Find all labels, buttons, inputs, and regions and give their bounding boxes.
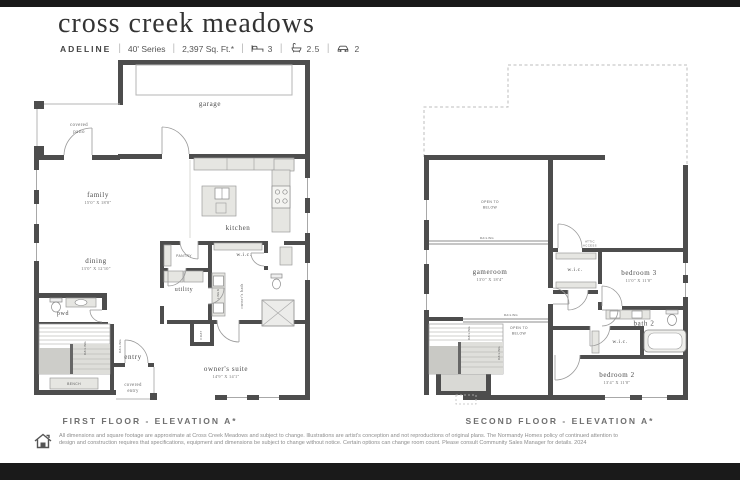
room-label-covered-patio: patio [73, 130, 85, 135]
room-label-bath2: bath 2 [634, 320, 655, 328]
room-dim-owners-suite: 14'9" X 14'1" [212, 374, 239, 379]
cars-count: 2 [354, 44, 359, 54]
second-floor-caption: SECOND FLOOR - ELEVATION A* [440, 416, 680, 426]
first-floor-caption: FIRST FLOOR - ELEVATION A* [30, 416, 270, 426]
second-floor-plan: OPEN TO BELOW RAILING gameroom 13'0" X 1… [420, 58, 710, 408]
beds-meta: 3 [251, 42, 273, 55]
room-label-coat: COAT [199, 330, 203, 339]
room-dim-bedroom3: 11'0" X 11'0" [626, 278, 653, 283]
page-title: cross creek meadows [58, 8, 315, 40]
railing-label: RAILING [118, 339, 122, 353]
bath-icon [290, 42, 303, 55]
separator: | [118, 43, 121, 54]
room-label-entry: entry [124, 353, 141, 361]
room-label-covered-entry: covered [124, 383, 142, 388]
room-dim-dining: 13'0" X 12'10" [81, 266, 111, 271]
room-label-wic: w.i.c. [567, 267, 582, 273]
room-label-covered-patio: covered [70, 123, 88, 128]
separator: | [327, 43, 330, 54]
open-to-below-label: BELOW [483, 206, 498, 210]
room-label-bedroom3: bedroom 3 [621, 269, 657, 277]
room-dim-family: 15'0" X 18'0" [84, 200, 111, 205]
open-to-below-label: BELOW [512, 332, 527, 336]
bottom-border-bar [0, 463, 740, 480]
room-label-garage: garage [199, 100, 221, 108]
room-label-wic: w.i.c. [612, 339, 627, 345]
room-label-bedroom2: bedroom 2 [599, 371, 635, 379]
baths-meta: 2.5 [290, 42, 320, 55]
room-dim-gameroom: 13'0" X 18'4" [476, 277, 503, 282]
separator: | [241, 43, 244, 54]
room-label-owners-bath: owner's bath [239, 283, 244, 309]
first-floor-fixtures [39, 158, 294, 389]
railing-label: RAILING [504, 313, 518, 317]
bench-label: BENCH [67, 382, 81, 386]
room-label-linen: LINEN [216, 289, 220, 299]
stairs [429, 324, 503, 374]
disclaimer-text: All dimensions and square footage are ap… [59, 433, 709, 447]
first-floor-plan: garage covered patio family 15'0" X 18'0… [32, 58, 312, 408]
room-label-utility: utility [175, 287, 194, 293]
railing-label: RAILING [480, 236, 494, 240]
beds-count: 3 [268, 44, 273, 54]
sqft-label: 2,397 Sq. Ft.* [182, 44, 234, 54]
attic-access-label: ACCESS [583, 244, 597, 248]
disclaimer-line-1: All dimensions and square footage are ap… [59, 433, 709, 440]
plan-meta-row: ADELINE | 40' Series | 2,397 Sq. Ft.* | … [60, 42, 360, 55]
separator: | [280, 43, 283, 54]
builder-house-icon [34, 433, 52, 449]
room-label-pwd: pwd [57, 311, 69, 317]
separator: | [172, 43, 175, 54]
room-label-owners-suite: owner's suite [204, 365, 248, 373]
room-label-covered-entry: entry [127, 389, 139, 394]
room-label-gameroom: gameroom [473, 268, 508, 276]
stairs [39, 324, 110, 374]
series-label: 40' Series [128, 44, 166, 54]
room-label-wic: w.i.c. [236, 252, 251, 258]
disclaimer-line-2: design and construction requires that sp… [59, 440, 709, 447]
room-label-kitchen: kitchen [226, 224, 251, 232]
top-border-bar [0, 0, 740, 7]
plan-name: ADELINE [60, 44, 111, 54]
railing-label: RAILING [83, 341, 87, 355]
open-to-below-label: OPEN TO [481, 200, 499, 204]
car-icon [336, 42, 350, 55]
room-label-family: family [87, 191, 109, 199]
bed-icon [251, 42, 264, 55]
room-label-pantry: PANTRY [176, 254, 192, 258]
cars-meta: 2 [336, 42, 359, 55]
baths-count: 2.5 [307, 44, 320, 54]
railing-label: RAILING [497, 346, 501, 360]
railing-label: RAILING [467, 326, 471, 340]
roof-outline-dashed [424, 65, 687, 167]
room-label-dining: dining [85, 257, 107, 265]
footer: All dimensions and square footage are ap… [34, 433, 714, 449]
room-dim-bedroom2: 13'4" X 11'0" [604, 380, 631, 385]
open-to-below-label: OPEN TO [510, 326, 528, 330]
